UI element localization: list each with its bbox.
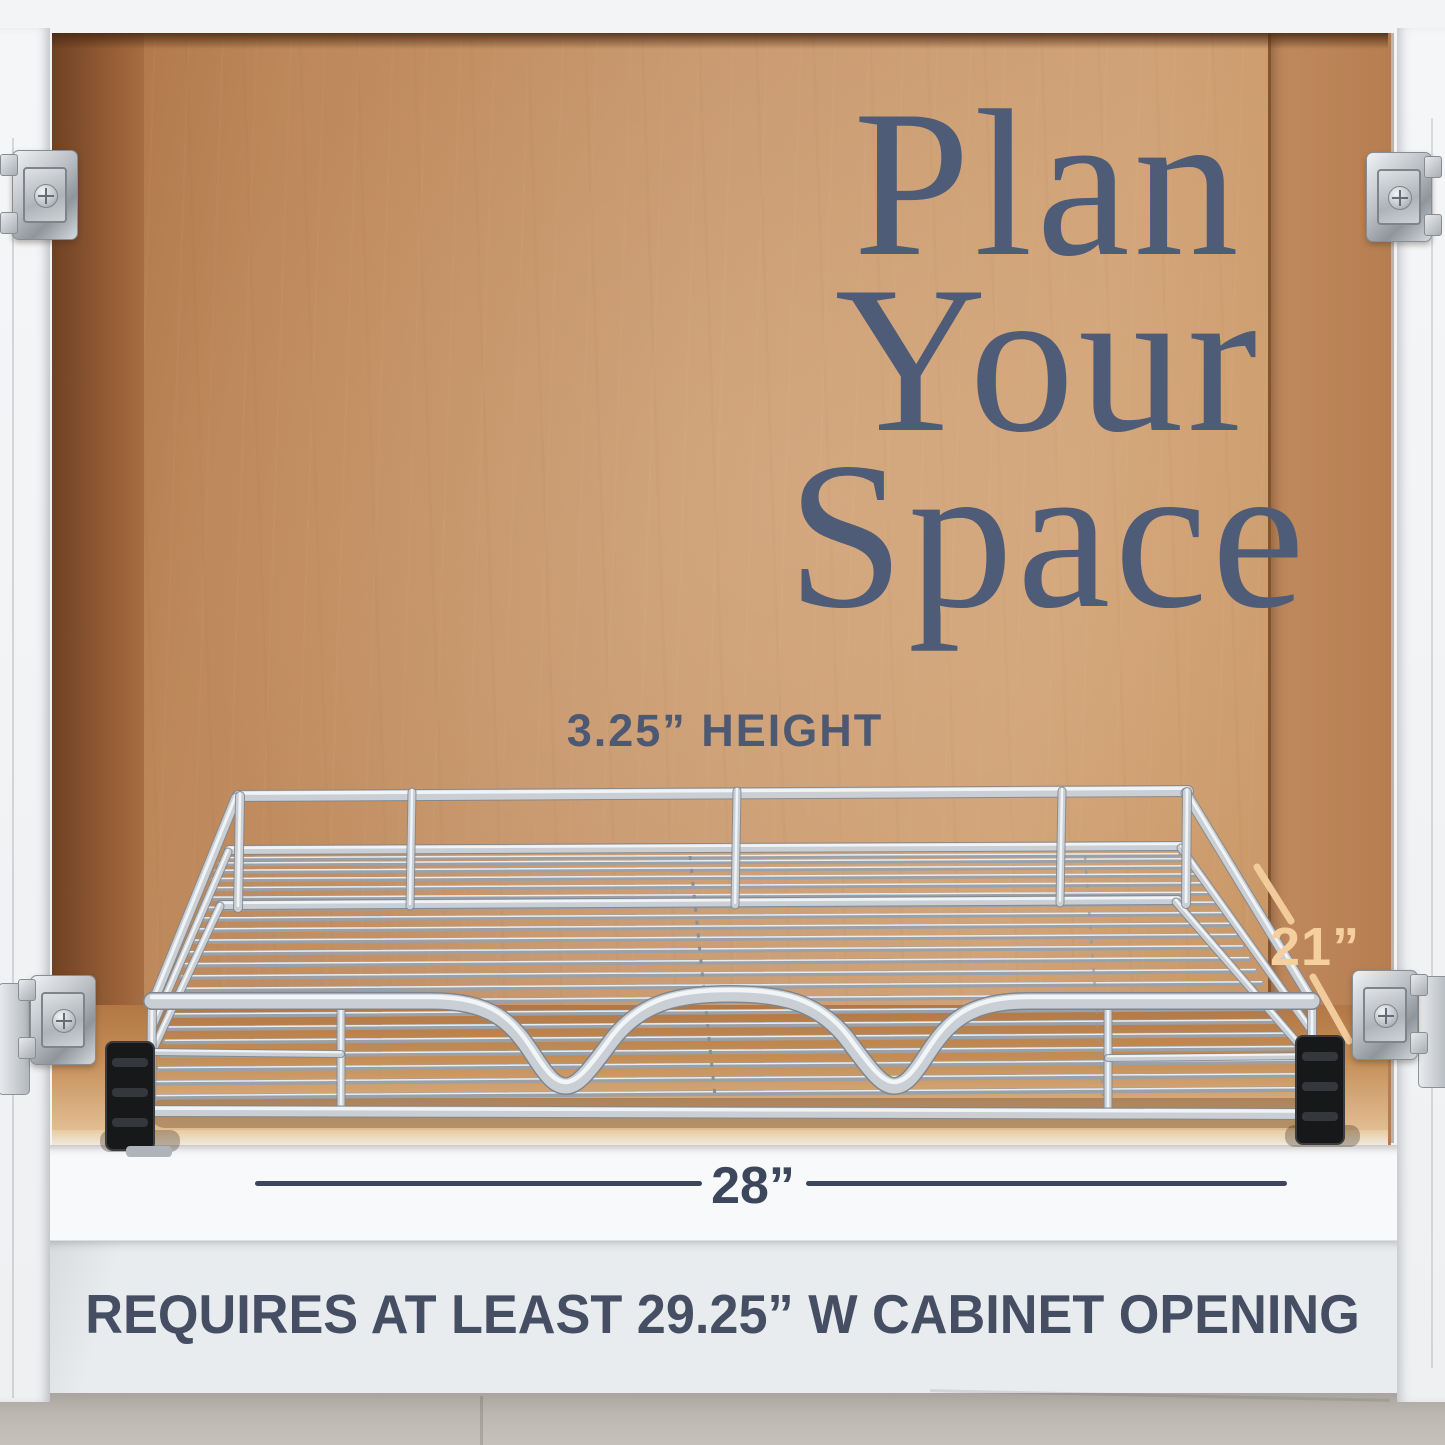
- screw-icon: [1374, 1004, 1398, 1028]
- hinge-plate: [12, 150, 78, 240]
- hinge-plate: [1352, 970, 1418, 1060]
- door-edge-line: [1431, 118, 1433, 1368]
- hinge-plate: [30, 975, 96, 1065]
- product-scene: Plan Your Space 3.25” HEIGHT 21” 28” REQ…: [0, 0, 1445, 1445]
- depth-dimension-label: 21”: [1270, 916, 1390, 978]
- pullout-wire-basket-graphic: [0, 0, 1445, 1445]
- screw-icon: [1388, 186, 1412, 210]
- door-edge-line: [12, 138, 14, 1398]
- hinge-icon: [30, 975, 94, 1063]
- hinge-icon: [1352, 970, 1416, 1058]
- screw-icon: [34, 184, 58, 208]
- screw-icon: [52, 1009, 76, 1033]
- hinge-icon: [12, 150, 76, 238]
- hinge-plate: [1366, 152, 1432, 242]
- hinge-icon: [1366, 152, 1430, 240]
